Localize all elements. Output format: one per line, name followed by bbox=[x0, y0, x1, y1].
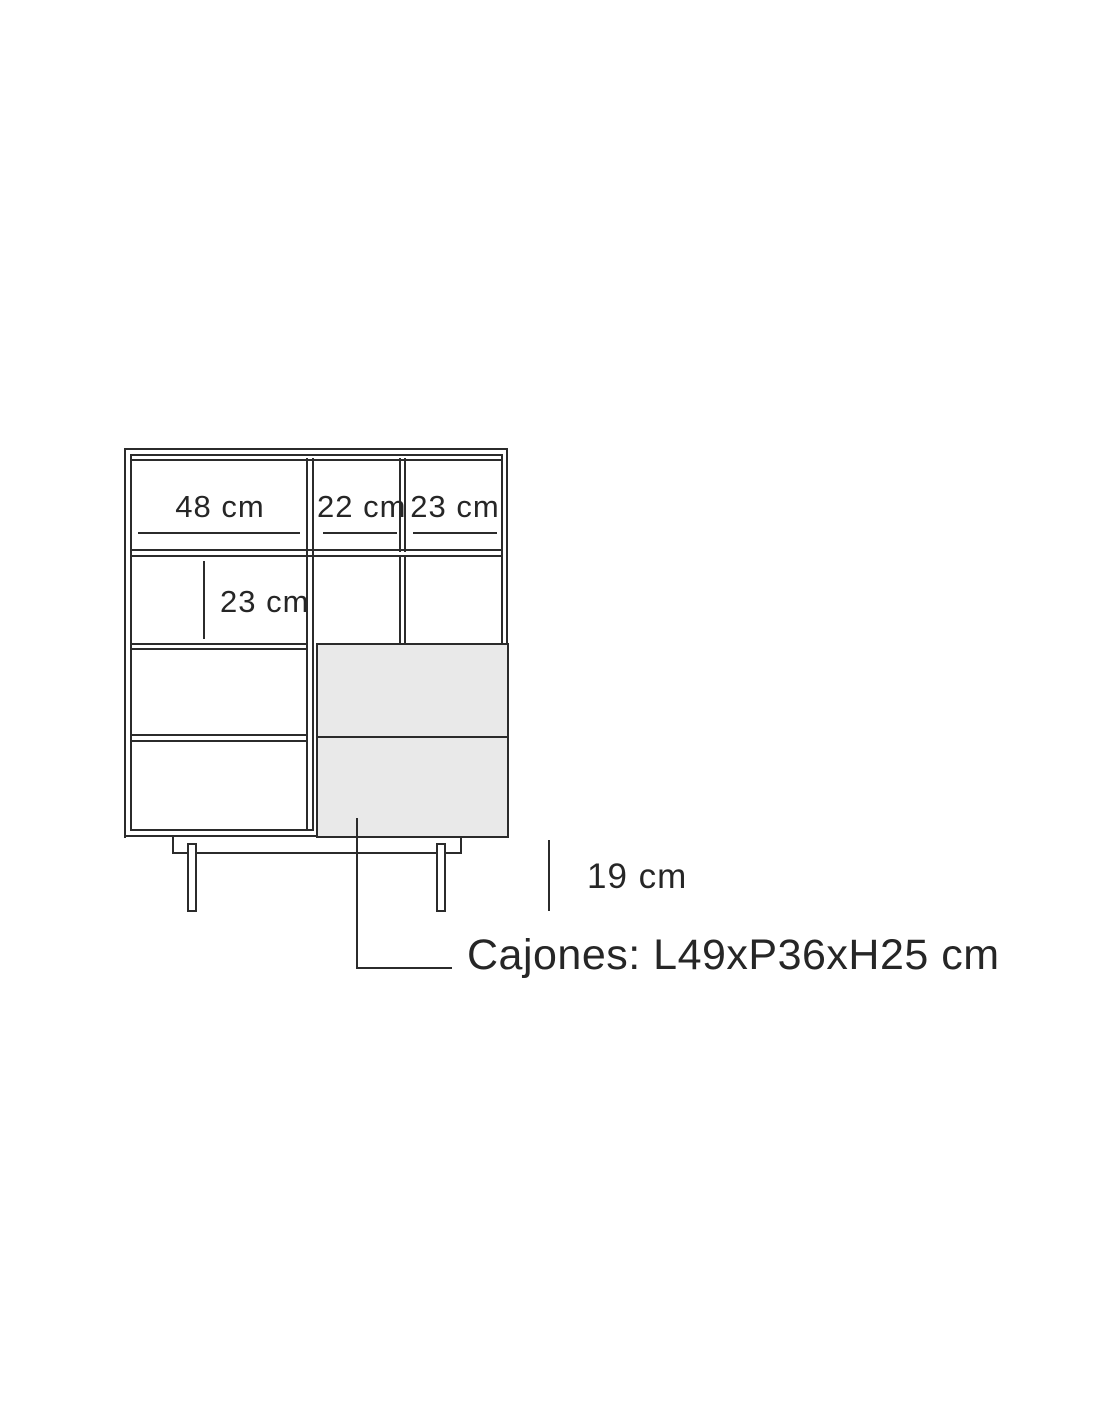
dimension-line-23cm-row2 bbox=[203, 561, 205, 639]
dimension-line-48cm bbox=[138, 532, 300, 534]
dimension-line-19cm bbox=[548, 840, 550, 911]
cabinet-top-outer-edge bbox=[124, 448, 508, 450]
label-drawers-note: Cajones: L49xP36xH25 cm bbox=[467, 933, 1000, 977]
label-19cm: 19 cm bbox=[587, 858, 687, 896]
shelf1-top-line bbox=[130, 549, 502, 551]
plinth-bottom-edge bbox=[172, 852, 462, 854]
cabinet-ceiling-line bbox=[130, 459, 502, 461]
cabinet-top-inner-edge bbox=[130, 454, 502, 456]
cabinet-left-panel-outer bbox=[124, 448, 126, 838]
dimension-line-22cm bbox=[323, 532, 397, 534]
right-divider-row2-right-line bbox=[404, 556, 406, 644]
drawers-leader-vertical bbox=[356, 818, 358, 969]
right-leg bbox=[436, 843, 446, 912]
drawers-leader-horizontal bbox=[356, 967, 452, 969]
left-shelf3-bottom-line bbox=[130, 740, 308, 742]
shelf1-bottom-line bbox=[130, 555, 502, 557]
center-divider-right-line bbox=[312, 458, 314, 831]
drawer-stack bbox=[316, 643, 509, 838]
dimension-line-23cm-top bbox=[413, 532, 497, 534]
left-leg bbox=[187, 843, 197, 912]
drawer-top-front bbox=[318, 645, 507, 738]
label-48cm: 48 cm bbox=[139, 490, 301, 524]
left-shelf2-bottom-line bbox=[130, 648, 308, 650]
label-22cm: 22 cm bbox=[317, 490, 403, 524]
furniture-dimension-diagram: 48 cm 22 cm 23 cm 23 cm 19 cm Cajones: L… bbox=[0, 0, 1100, 1422]
drawer-bottom-front bbox=[318, 738, 507, 834]
right-divider-row2-left-line bbox=[399, 556, 401, 644]
cabinet-bottom-inner-line bbox=[130, 829, 314, 831]
label-23cm-row2: 23 cm bbox=[220, 585, 309, 619]
left-shelf2-top-line bbox=[130, 643, 308, 645]
label-23cm-top: 23 cm bbox=[409, 490, 501, 524]
left-shelf3-top-line bbox=[130, 734, 308, 736]
